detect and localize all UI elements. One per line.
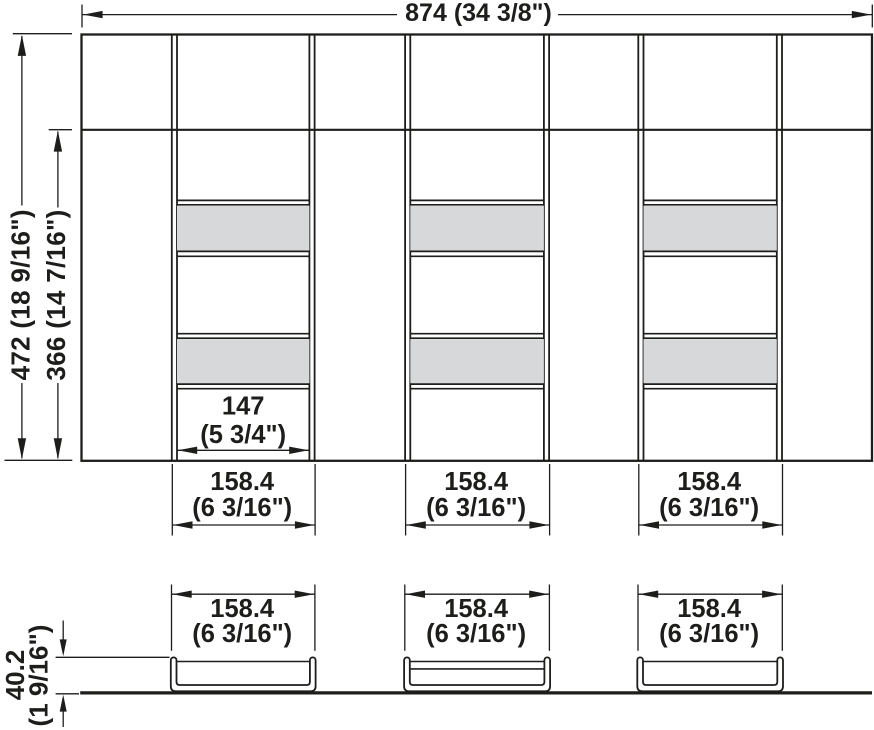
svg-text:(5 3/4"): (5 3/4")	[200, 421, 286, 449]
svg-text:158.4: 158.4	[677, 595, 742, 623]
svg-text:874 (34 3/8"): 874 (34 3/8")	[405, 0, 552, 27]
svg-text:158.4: 158.4	[210, 595, 275, 623]
svg-text:158.4: 158.4	[210, 468, 275, 496]
svg-text:(6 3/16"): (6 3/16")	[659, 494, 759, 522]
svg-text:(6 3/16"): (6 3/16")	[426, 620, 526, 648]
svg-text:147: 147	[222, 393, 265, 421]
svg-text:472 (18 9/16"): 472 (18 9/16")	[5, 209, 35, 380]
svg-text:(6 3/16"): (6 3/16")	[659, 620, 759, 648]
svg-text:158.4: 158.4	[444, 595, 509, 623]
svg-text:(6 3/16"): (6 3/16")	[426, 494, 526, 522]
svg-text:(6 3/16"): (6 3/16")	[192, 620, 292, 648]
svg-text:366 (14 7/16"): 366 (14 7/16")	[41, 209, 71, 380]
svg-text:158.4: 158.4	[677, 468, 742, 496]
svg-text:(6 3/16"): (6 3/16")	[192, 494, 292, 522]
svg-text:158.4: 158.4	[444, 468, 509, 496]
svg-text:(1 9/16"): (1 9/16")	[23, 625, 53, 727]
